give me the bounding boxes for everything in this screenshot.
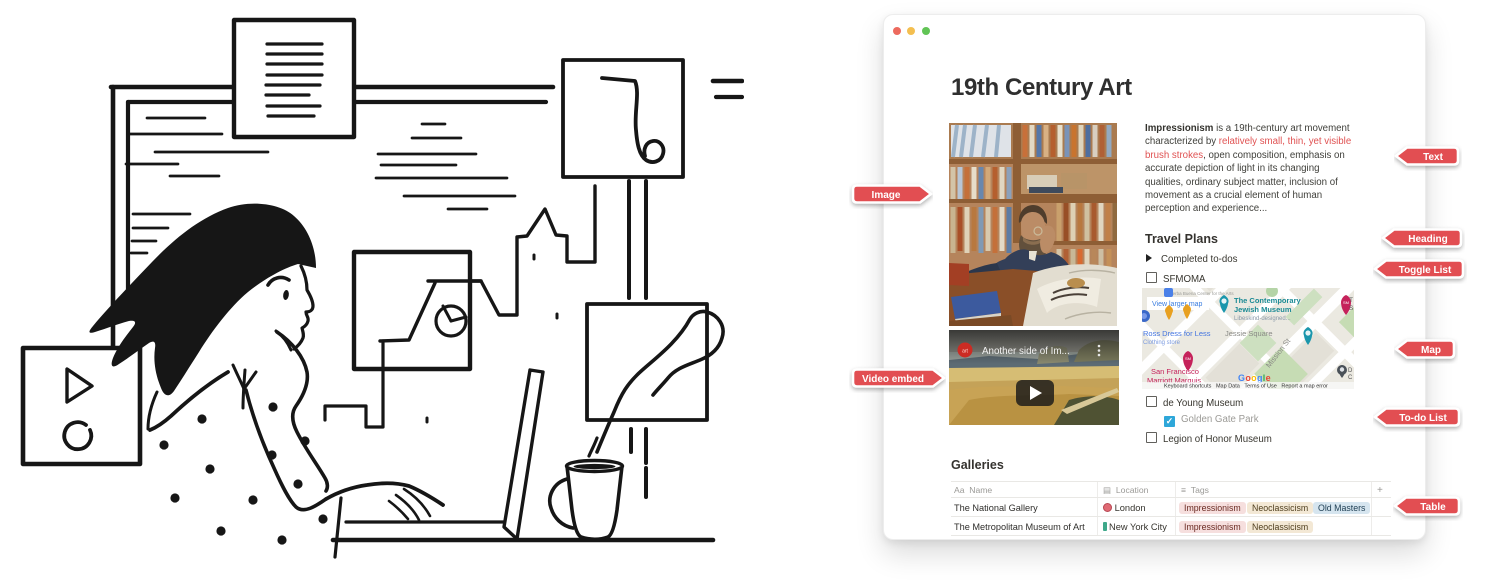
svg-text:Video embed: Video embed bbox=[862, 374, 924, 385]
svg-text:Keyboard shortcuts Map Data: Keyboard shortcuts Map Data Terms of Use… bbox=[1164, 384, 1328, 390]
svg-text:Image: Image bbox=[872, 190, 901, 201]
svg-text:View larger map: View larger map bbox=[1152, 301, 1203, 308]
svg-text:Heading: Heading bbox=[1408, 234, 1447, 245]
svg-text:The Contemporary: The Contemporary bbox=[1234, 296, 1302, 305]
svg-text:Jewish Museum: Jewish Museum bbox=[1234, 305, 1292, 314]
svg-text:Ross Dress for Less: Ross Dress for Less bbox=[1143, 329, 1211, 338]
svg-text:S: S bbox=[1349, 305, 1354, 312]
svg-text:Clothing store: Clothing store bbox=[1143, 340, 1181, 346]
svg-text:San Francisco: San Francisco bbox=[1151, 367, 1199, 376]
svg-text:Yerba Buena Center for the Art: Yerba Buena Center for the Arts bbox=[1170, 291, 1234, 296]
svg-text:T: T bbox=[1349, 297, 1353, 304]
svg-text:Another side of Im...: Another side of Im... bbox=[982, 346, 1070, 357]
svg-text:art: art bbox=[962, 349, 968, 355]
svg-text:To-do List: To-do List bbox=[1399, 413, 1447, 424]
svg-text:Map: Map bbox=[1421, 345, 1441, 356]
svg-text:Google: Google bbox=[1238, 373, 1271, 383]
svg-text:SM: SM bbox=[1185, 356, 1191, 361]
svg-text:D: D bbox=[1348, 368, 1353, 374]
svg-text:Libeskind-designed...: Libeskind-designed... bbox=[1234, 316, 1291, 322]
svg-text:Jessie Square: Jessie Square bbox=[1225, 329, 1273, 338]
svg-text:Toggle List: Toggle List bbox=[1399, 265, 1452, 276]
svg-text:C: C bbox=[1348, 375, 1353, 381]
svg-text:Text: Text bbox=[1423, 152, 1443, 163]
svg-text:Table: Table bbox=[1420, 502, 1446, 513]
